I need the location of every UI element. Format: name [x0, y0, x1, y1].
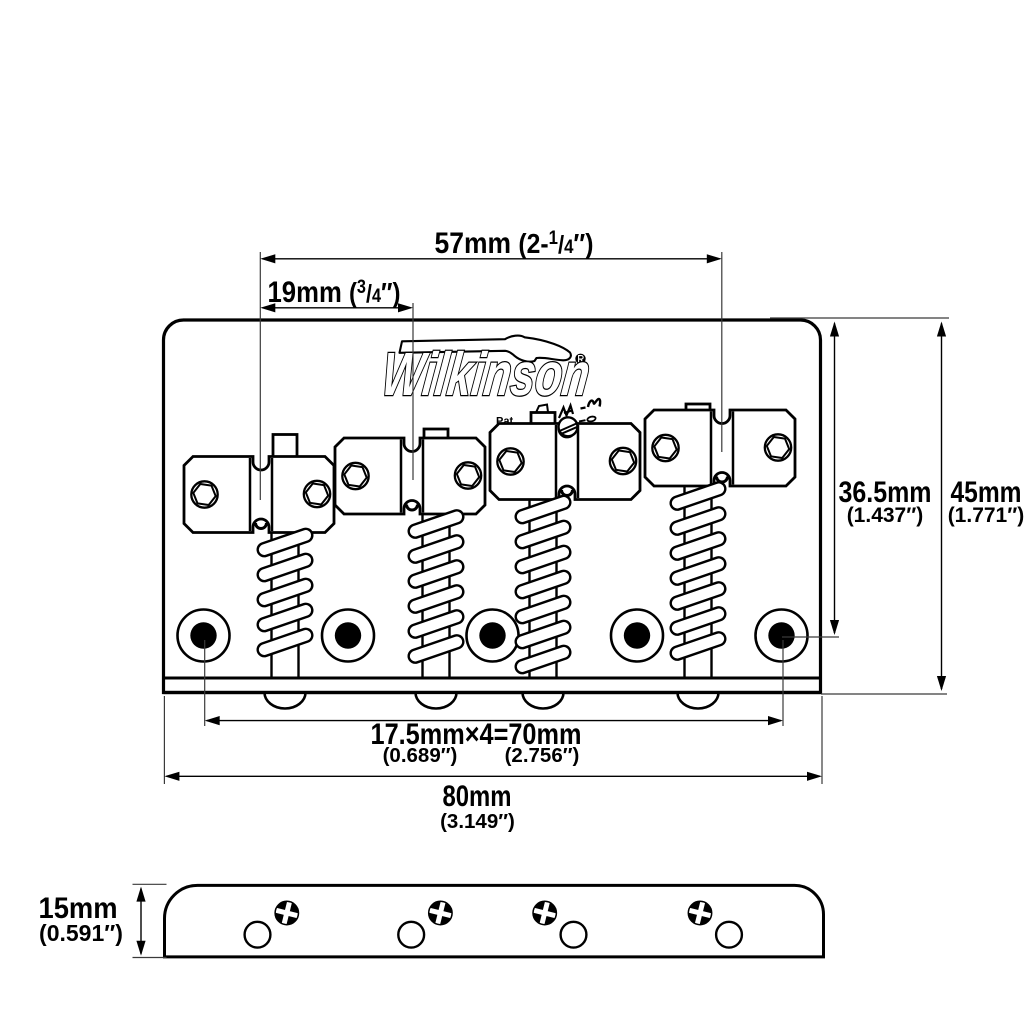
svg-text:(0.689″): (0.689″): [383, 744, 458, 767]
svg-text:80mm: 80mm: [443, 780, 512, 813]
svg-text:(1.771″): (1.771″): [948, 504, 1024, 527]
svg-text:Wilkinson: Wilkinson: [378, 340, 593, 408]
svg-text:(3.149″): (3.149″): [440, 810, 515, 833]
svg-text:(2.756″): (2.756″): [505, 744, 580, 767]
svg-text:(1.437″): (1.437″): [847, 504, 924, 527]
svg-text:19mm (3/4″): 19mm (3/4″): [268, 276, 401, 309]
svg-text:(0.591″): (0.591″): [39, 920, 123, 946]
